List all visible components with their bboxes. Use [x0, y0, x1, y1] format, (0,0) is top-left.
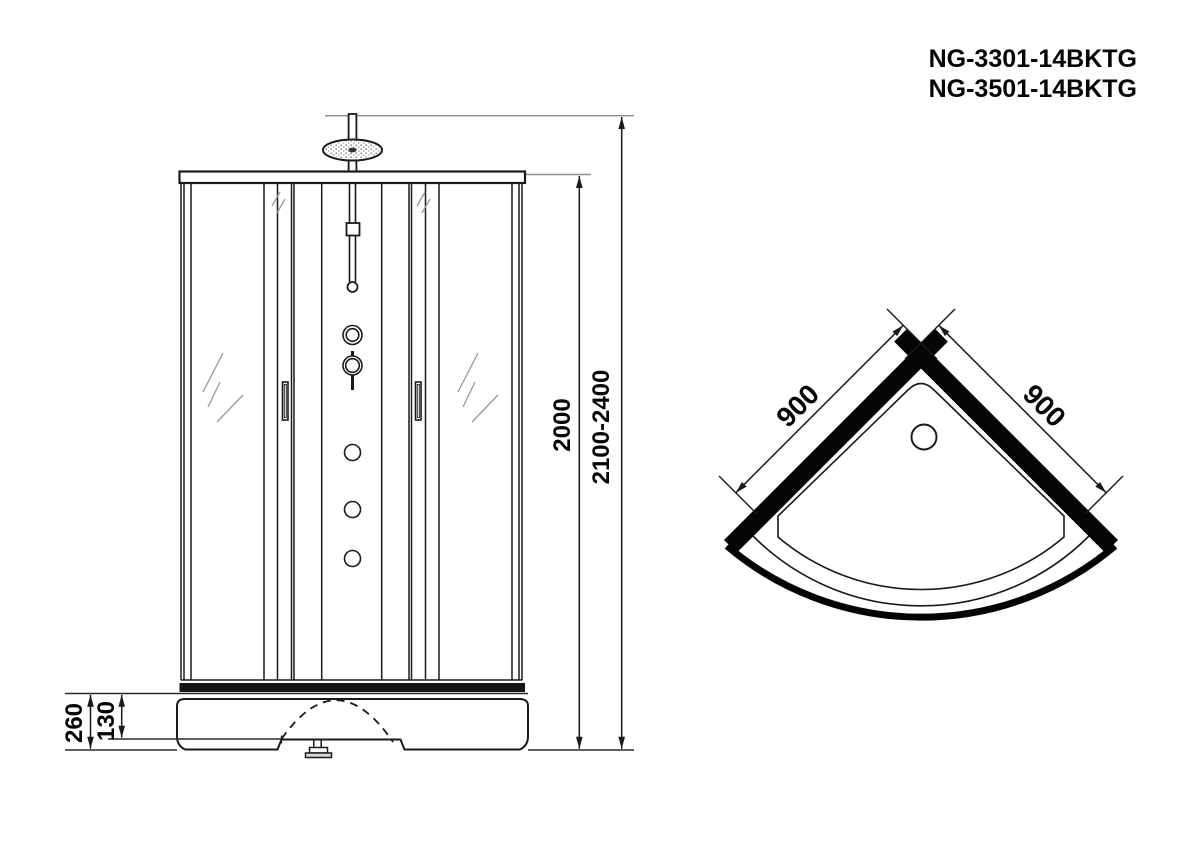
door-handle-right — [416, 382, 422, 420]
top-view-drawing — [719, 309, 1123, 617]
dim-label-2000: 2000 — [549, 398, 577, 451]
cabin-roof-frame — [180, 172, 526, 184]
drain — [912, 425, 937, 450]
cabin-bottom-frame — [180, 683, 526, 692]
tray-basin-rim — [778, 384, 1064, 590]
model-line-1: NG-3301-14BKTG — [929, 44, 1137, 74]
extension-lines-bottom — [65, 739, 634, 750]
shower-head — [323, 114, 382, 173]
page-canvas: NG-3301-14BKTG NG-3501-14BKTG 2000 2100-… — [0, 0, 1200, 849]
control-ring — [343, 326, 362, 345]
shower-tray — [65, 694, 528, 750]
shower-riser — [347, 183, 360, 292]
door-handle-left — [283, 382, 289, 420]
dim-label-2100-2400: 2100-2400 — [588, 370, 616, 485]
dim-label-130: 130 — [93, 701, 121, 741]
glass-panels — [181, 183, 522, 680]
hydromassage-jets — [345, 445, 361, 567]
mixer-lever — [343, 351, 362, 390]
tray-foot — [306, 740, 332, 758]
model-title: NG-3301-14BKTG NG-3501-14BKTG — [929, 44, 1137, 104]
model-line-2: NG-3501-14BKTG — [929, 74, 1137, 104]
dim-label-260: 260 — [61, 703, 89, 743]
